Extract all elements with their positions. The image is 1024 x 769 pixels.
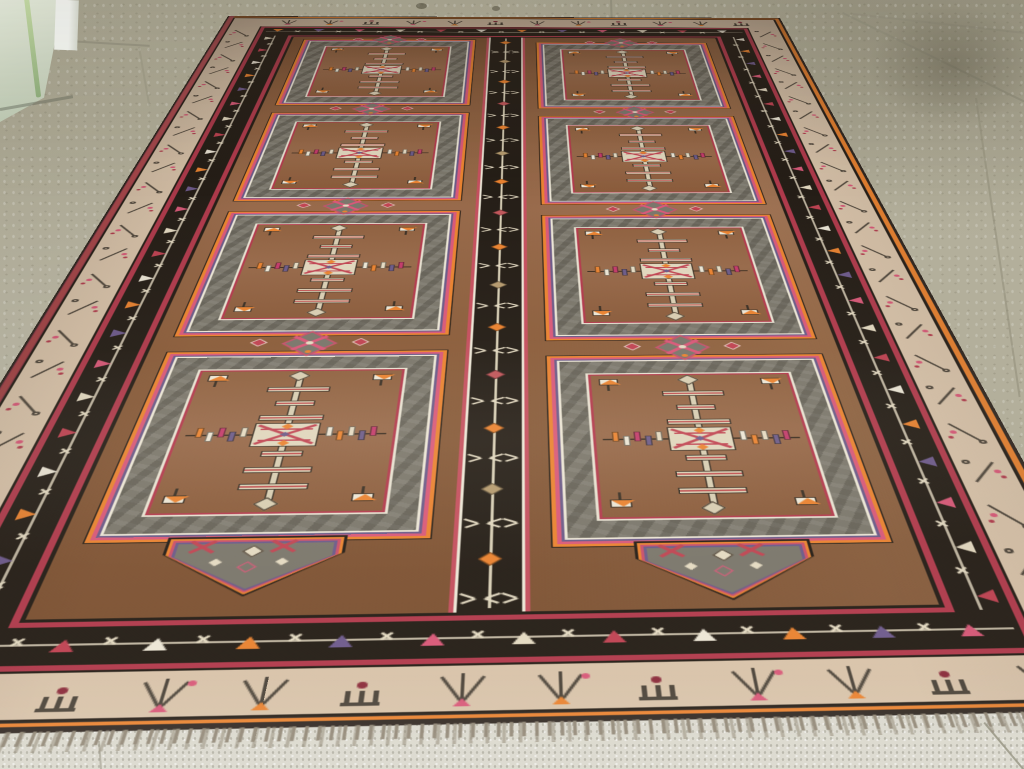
flower-cluster xyxy=(422,21,426,22)
vine-curl xyxy=(0,431,3,435)
tick-bar xyxy=(657,72,662,75)
fan-base xyxy=(284,23,292,24)
triangle-motif xyxy=(395,29,406,32)
corner-flag-half xyxy=(408,180,424,183)
vine-flower xyxy=(761,47,764,48)
medallion-dot xyxy=(624,75,631,77)
vine-curl xyxy=(884,256,892,259)
stem-finial xyxy=(359,122,374,127)
waist-side-diamond xyxy=(297,203,312,208)
waist-dot xyxy=(632,111,638,113)
vine-curl xyxy=(193,95,199,97)
vine-flower xyxy=(45,340,51,342)
waist-joint xyxy=(582,106,689,119)
fan-base xyxy=(251,702,271,711)
bracket-bar xyxy=(496,229,506,232)
panel-inner-field xyxy=(578,228,769,322)
stem-finial xyxy=(330,225,348,232)
tick-bar xyxy=(292,262,300,268)
triangle-motif xyxy=(637,30,648,32)
vine-flower xyxy=(110,233,115,235)
corner-flag-half xyxy=(796,498,821,505)
vine-curl xyxy=(791,74,797,75)
waist-dot xyxy=(654,214,660,216)
vine-motif xyxy=(753,31,781,39)
stripe-bracket xyxy=(489,91,519,95)
flower-cluster xyxy=(369,20,374,21)
comb-tooth xyxy=(612,23,614,25)
tick-bar xyxy=(334,69,339,72)
stem-bar xyxy=(647,248,680,252)
fan-motif xyxy=(603,20,636,26)
x-motif xyxy=(266,43,274,45)
corner-hook-line xyxy=(709,181,712,184)
waist-joint xyxy=(575,38,668,49)
vine-curl xyxy=(778,81,784,82)
flower-cluster xyxy=(493,21,497,22)
tick-bar xyxy=(600,70,605,73)
stem-bar xyxy=(359,81,400,83)
bracket-bar xyxy=(511,115,520,117)
vine-flower xyxy=(852,187,857,188)
corner-flag-half xyxy=(581,184,597,187)
stripe-bracket xyxy=(483,195,519,200)
bracket-bar xyxy=(479,265,490,268)
vine-curl xyxy=(846,221,853,223)
comb-tooth xyxy=(68,696,77,708)
bracket-bar xyxy=(510,167,519,169)
comb-tooth xyxy=(618,23,620,25)
triangle-motif xyxy=(205,150,219,155)
corner-flag-half xyxy=(741,310,761,314)
comb-tooth xyxy=(495,22,497,24)
vine-flower xyxy=(56,368,64,371)
medallion xyxy=(666,427,736,451)
comb-motif xyxy=(362,24,379,25)
x-motif xyxy=(773,141,782,144)
bracket xyxy=(511,91,519,95)
vine-motif xyxy=(226,29,255,37)
flower-cluster xyxy=(187,680,198,686)
corner-flag-half xyxy=(316,90,330,92)
stem-bar xyxy=(625,171,671,174)
bracket xyxy=(501,91,510,95)
corner-flag-half xyxy=(386,306,406,310)
vine-flower xyxy=(893,275,900,277)
vine-flower xyxy=(874,230,879,232)
stem-bar xyxy=(666,419,731,425)
stripe-bracket xyxy=(471,397,519,406)
vine-line xyxy=(771,56,784,62)
medallion xyxy=(300,259,358,275)
corner-flag xyxy=(572,93,585,96)
vine-flower xyxy=(860,253,865,255)
vine-flower xyxy=(885,305,891,307)
waist-side-diamond xyxy=(647,41,658,44)
vine-curl xyxy=(102,285,111,288)
vine-motif xyxy=(790,110,823,121)
fan-motif xyxy=(480,20,513,26)
tick-bar xyxy=(388,265,395,271)
corner-flag-half xyxy=(163,496,189,503)
stem-bar xyxy=(350,137,378,139)
corner-flag-half xyxy=(576,128,591,130)
vine-curl xyxy=(214,88,220,90)
corner-flag xyxy=(740,310,759,315)
medallion xyxy=(335,147,383,158)
fan-motif xyxy=(438,20,471,26)
waist-side-diamond xyxy=(329,106,341,110)
waist-joint xyxy=(593,200,718,219)
vine-motif xyxy=(806,142,841,155)
tick-bar xyxy=(348,69,353,72)
vine-flower xyxy=(208,99,213,100)
tick-bar xyxy=(342,67,347,70)
triangle-motif xyxy=(859,324,876,331)
x-motif xyxy=(823,260,834,264)
flower-cluster xyxy=(773,669,783,675)
bracket-bar xyxy=(509,229,519,232)
triangle-motif xyxy=(236,636,263,649)
stem-bar xyxy=(653,282,688,286)
tick-bar xyxy=(645,436,653,446)
triangle-motif xyxy=(222,117,235,121)
vine-flower xyxy=(58,372,65,374)
bracket xyxy=(509,195,519,200)
bracket xyxy=(490,397,503,406)
bracket-bar xyxy=(491,52,499,53)
medallion-dot xyxy=(697,444,709,450)
vine-flower xyxy=(804,130,809,131)
stripe-bracket xyxy=(481,227,519,233)
vine-flower xyxy=(15,440,24,444)
comb-tooth xyxy=(39,697,48,709)
fan-base xyxy=(552,696,570,704)
tick-bar xyxy=(604,269,610,275)
tick-bar xyxy=(583,153,588,158)
stem-finial xyxy=(624,94,638,98)
tick-bar xyxy=(424,69,429,72)
waist-side-diamond xyxy=(353,38,364,41)
bracket-bar xyxy=(505,457,519,462)
triangle-motif xyxy=(776,133,789,137)
fan-base xyxy=(657,25,665,26)
bracket-bar xyxy=(489,457,503,462)
corner-flag xyxy=(161,495,186,503)
tick-bar xyxy=(282,265,290,271)
corner-flag xyxy=(610,499,633,507)
corner-flag-half xyxy=(719,231,737,234)
x-motif xyxy=(153,263,165,267)
corner-hook-line xyxy=(682,91,684,93)
vine-line xyxy=(815,144,829,153)
bracket xyxy=(493,303,505,310)
bracket xyxy=(499,138,508,142)
vine-flower xyxy=(159,151,164,152)
fan-motif xyxy=(684,21,718,27)
x-motif xyxy=(335,30,343,32)
triangle-motif xyxy=(264,37,275,40)
stem-finial xyxy=(289,371,311,381)
waist-side-diamond xyxy=(584,41,595,44)
corner-flag xyxy=(704,184,720,188)
vine-motif xyxy=(783,95,815,106)
tick-bar xyxy=(313,149,319,154)
stem-bar xyxy=(636,239,688,243)
comb-tooth xyxy=(489,22,491,24)
corner-flag xyxy=(385,306,404,311)
waist-side-diamond xyxy=(724,342,741,350)
bracket-bar xyxy=(511,71,519,73)
vine-flower xyxy=(179,116,183,117)
floor-stain xyxy=(416,3,427,9)
fan-base xyxy=(451,24,459,25)
triangle-motif xyxy=(420,633,445,646)
x-motif xyxy=(194,634,212,644)
bracket-bar xyxy=(486,522,501,527)
fan-motif xyxy=(219,672,307,715)
x-motif xyxy=(827,623,844,632)
bracket-bar xyxy=(495,265,506,268)
compartment-panel xyxy=(82,350,448,544)
vine-flower xyxy=(16,446,23,449)
bracket-bar xyxy=(509,197,519,199)
tick-bar xyxy=(369,426,377,436)
stripe-bracket xyxy=(490,70,519,73)
waist-dot xyxy=(619,42,624,43)
stem-bar xyxy=(241,466,312,473)
triangle-motif xyxy=(816,226,831,232)
stem-bar xyxy=(266,387,330,393)
vine-flower xyxy=(828,147,833,149)
triangle-motif xyxy=(597,30,608,32)
bracket-bar xyxy=(465,523,480,529)
stem-bar xyxy=(607,66,646,68)
comb-motif xyxy=(611,25,627,26)
bracket-bar xyxy=(511,92,519,94)
triangle-motif xyxy=(213,133,226,137)
tick-bar xyxy=(782,430,792,440)
waist-joint xyxy=(342,35,437,46)
tick-bar xyxy=(380,262,387,268)
grout-line xyxy=(975,98,1021,397)
bracket xyxy=(498,165,508,170)
waist-joint xyxy=(608,334,760,362)
bracket-bar xyxy=(474,350,486,354)
corner-flag-half xyxy=(667,52,680,54)
x-motif xyxy=(140,288,153,292)
medallion xyxy=(621,151,668,162)
flower-cluster xyxy=(651,676,662,683)
fan-motif xyxy=(643,21,677,27)
waist-dot xyxy=(651,208,658,210)
fan-motif xyxy=(321,670,405,713)
waist-joint xyxy=(281,197,409,216)
bracket-bar xyxy=(490,71,498,73)
vine-line xyxy=(784,82,797,89)
comb-tooth xyxy=(54,697,63,709)
triangle-motif xyxy=(328,635,354,648)
corner-flag xyxy=(351,493,374,501)
bracket xyxy=(488,114,497,118)
vine-motif xyxy=(211,53,242,62)
vine-motif xyxy=(777,81,808,91)
corner-flag-half xyxy=(234,307,255,311)
photo-canvas xyxy=(0,0,1024,769)
compartment-panel xyxy=(541,214,817,341)
stem-bar xyxy=(677,487,747,494)
medallion-dot xyxy=(664,275,673,279)
bracket-bar xyxy=(507,350,519,354)
corner-hook-line xyxy=(577,91,579,93)
x-motif xyxy=(742,68,750,70)
tick-bar xyxy=(612,432,620,442)
flower-cluster xyxy=(668,22,672,23)
stem-finial xyxy=(380,47,393,51)
corner-hook-line xyxy=(581,131,583,134)
fan-motif xyxy=(562,20,595,26)
stem-bar xyxy=(274,401,315,407)
bracket xyxy=(492,347,505,355)
vine-flower xyxy=(170,166,176,168)
vine-line xyxy=(834,181,849,191)
tick-bar xyxy=(362,262,369,268)
bracket xyxy=(474,347,487,355)
vine-flower xyxy=(887,301,894,304)
tick-bar xyxy=(591,155,596,160)
tick-bar xyxy=(598,153,603,158)
vine-flower xyxy=(210,101,214,102)
x-motif xyxy=(457,31,464,33)
stem-bar xyxy=(332,168,379,171)
vine-curl xyxy=(792,110,798,112)
tick-bar xyxy=(274,263,282,269)
stem-bar xyxy=(292,299,350,303)
corner-flag xyxy=(315,90,329,93)
stem-bar xyxy=(675,404,715,410)
x-motif xyxy=(176,217,187,221)
comb-tooth xyxy=(931,680,939,691)
vine-flower xyxy=(214,59,218,60)
tick-bar xyxy=(328,67,333,70)
stem-bar xyxy=(626,179,673,182)
waist-side-diamond xyxy=(689,206,703,211)
vine-motif xyxy=(219,41,249,50)
bracket xyxy=(511,70,519,73)
corner-flag-half xyxy=(352,494,377,501)
comb-tooth xyxy=(734,23,737,25)
triangle-motif xyxy=(476,30,487,33)
x-motif xyxy=(206,159,216,162)
corner-hook-line xyxy=(746,305,750,310)
vine-flower xyxy=(786,60,790,61)
fan-base xyxy=(326,23,334,24)
corner-flag-half xyxy=(705,184,721,187)
vine-curl xyxy=(174,126,181,128)
fan-base xyxy=(534,24,541,25)
corner-hook-line xyxy=(694,131,697,134)
corner-flag-half xyxy=(611,500,635,507)
corner-hook-line xyxy=(801,490,806,497)
fan-motif xyxy=(271,19,307,25)
bracket-bar xyxy=(472,400,485,404)
x-motif xyxy=(916,477,932,484)
pendant xyxy=(634,539,827,602)
fan-base xyxy=(575,24,583,25)
x-motif xyxy=(260,55,268,57)
comb-tooth xyxy=(655,685,661,696)
stem-bar xyxy=(312,235,365,239)
medallion-dot xyxy=(277,440,289,446)
vine-curl xyxy=(71,299,80,302)
corner-hook-line xyxy=(435,51,437,53)
tick-bar xyxy=(217,428,227,438)
vine-curl xyxy=(129,202,137,204)
panel-inner-field xyxy=(309,47,449,96)
tick-bar xyxy=(605,155,610,160)
stripe-bracket xyxy=(464,518,519,530)
vine-line xyxy=(906,324,923,339)
bracket-bar xyxy=(499,167,508,169)
x-motif xyxy=(294,30,302,32)
corner-hook-line xyxy=(379,380,383,386)
bracket xyxy=(503,592,519,606)
triangle-motif xyxy=(251,61,262,64)
vine-curl xyxy=(225,41,230,42)
tick-bar xyxy=(194,428,204,438)
vine-line xyxy=(19,396,37,414)
medallion-dot xyxy=(641,159,649,162)
fan-base xyxy=(409,24,417,25)
tick-bar xyxy=(595,266,601,272)
waist-side-diamond xyxy=(416,38,427,41)
stem-finial xyxy=(630,126,645,131)
triangle-motif xyxy=(885,385,904,394)
fan-motif xyxy=(904,659,994,700)
x-motif xyxy=(579,31,586,33)
x-motif xyxy=(187,197,198,200)
bracket xyxy=(502,70,510,73)
comb-tooth xyxy=(624,23,626,25)
corner-flag-half xyxy=(303,125,318,127)
vine-flower xyxy=(141,186,147,188)
corner-flag xyxy=(592,310,610,315)
stripe-bracket xyxy=(477,302,519,309)
vine-flower xyxy=(171,169,176,170)
waist-side-diamond xyxy=(401,106,413,110)
vine-curl xyxy=(34,360,44,364)
flower-cluster xyxy=(56,687,70,694)
waist-side-diamond xyxy=(606,206,620,211)
tick-bar xyxy=(409,151,415,156)
tick-bar xyxy=(670,153,676,158)
x-motif xyxy=(933,519,949,527)
bracket xyxy=(507,347,519,355)
tick-bar xyxy=(594,72,599,75)
bracket xyxy=(489,91,498,95)
bracket xyxy=(510,165,520,170)
bracket xyxy=(504,518,519,530)
stripe-bracket xyxy=(485,165,520,170)
bracket-bar xyxy=(481,229,491,232)
comb-tooth xyxy=(373,691,379,703)
fan-base xyxy=(749,692,768,700)
tick-bar xyxy=(581,72,585,75)
comb-tooth xyxy=(745,23,748,25)
stem-bar xyxy=(632,164,661,167)
corner-hook-line xyxy=(591,235,594,239)
tick-bar xyxy=(693,155,699,160)
